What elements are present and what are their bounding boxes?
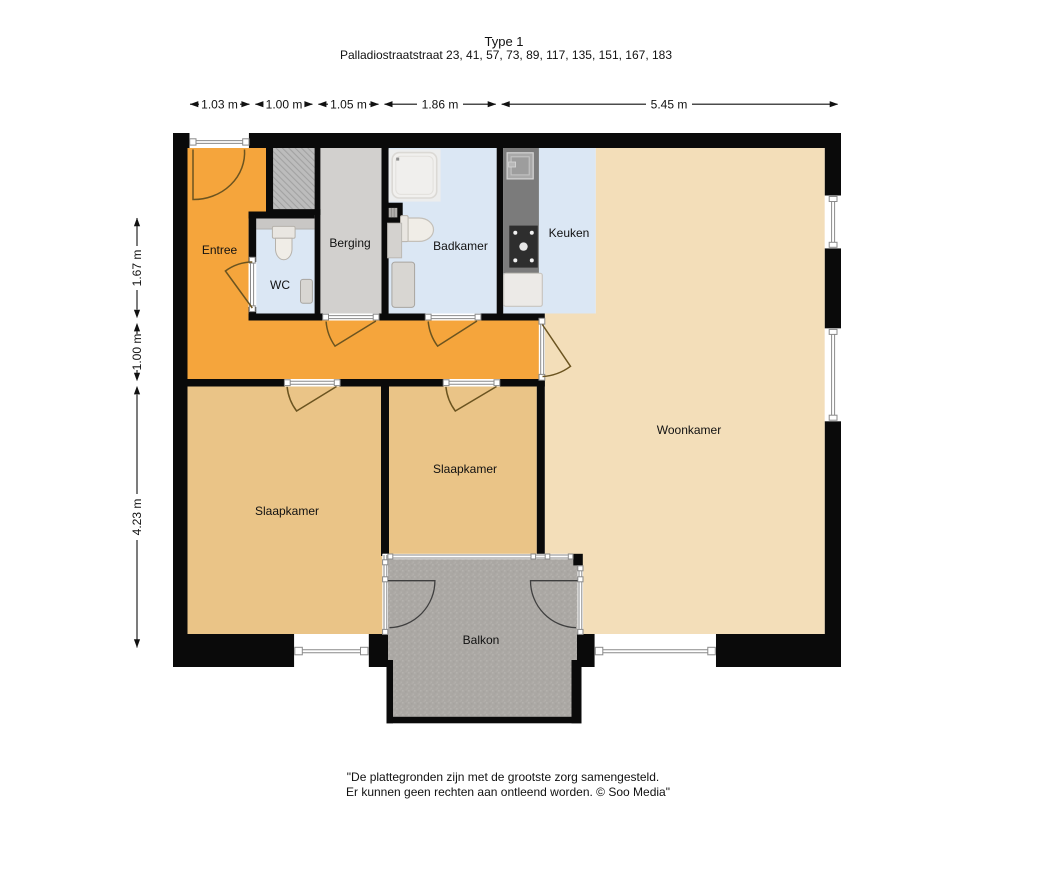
svg-text:1.00 m: 1.00 m bbox=[266, 98, 303, 112]
svg-text:Entree: Entree bbox=[202, 243, 238, 257]
svg-text:1.67 m: 1.67 m bbox=[130, 250, 144, 287]
svg-text:1.00 m: 1.00 m bbox=[130, 334, 144, 371]
svg-text:Er kunnen geen rechten aan ont: Er kunnen geen rechten aan ontleend word… bbox=[346, 785, 670, 799]
svg-text:1.03 m: 1.03 m bbox=[201, 98, 238, 112]
svg-text:Balkon: Balkon bbox=[463, 633, 500, 647]
svg-text:Type 1: Type 1 bbox=[484, 34, 523, 49]
svg-text:"De plattegronden zijn met de: "De plattegronden zijn met de grootste z… bbox=[347, 770, 659, 784]
svg-text:Badkamer: Badkamer bbox=[433, 239, 488, 253]
svg-text:1.86 m: 1.86 m bbox=[422, 98, 459, 112]
svg-text:4.23 m: 4.23 m bbox=[130, 499, 144, 536]
svg-text:Woonkamer: Woonkamer bbox=[657, 423, 721, 437]
svg-text:5.45 m: 5.45 m bbox=[651, 98, 688, 112]
svg-text:Slaapkamer: Slaapkamer bbox=[433, 462, 497, 476]
svg-text:Palladiostraatstraat 23, 41, 5: Palladiostraatstraat 23, 41, 57, 73, 89,… bbox=[340, 48, 672, 62]
svg-text:Slaapkamer: Slaapkamer bbox=[255, 504, 319, 518]
svg-text:Keuken: Keuken bbox=[549, 226, 590, 240]
svg-text:WC: WC bbox=[270, 278, 290, 292]
svg-text:1.05 m: 1.05 m bbox=[330, 98, 367, 112]
svg-text:Berging: Berging bbox=[329, 236, 370, 250]
